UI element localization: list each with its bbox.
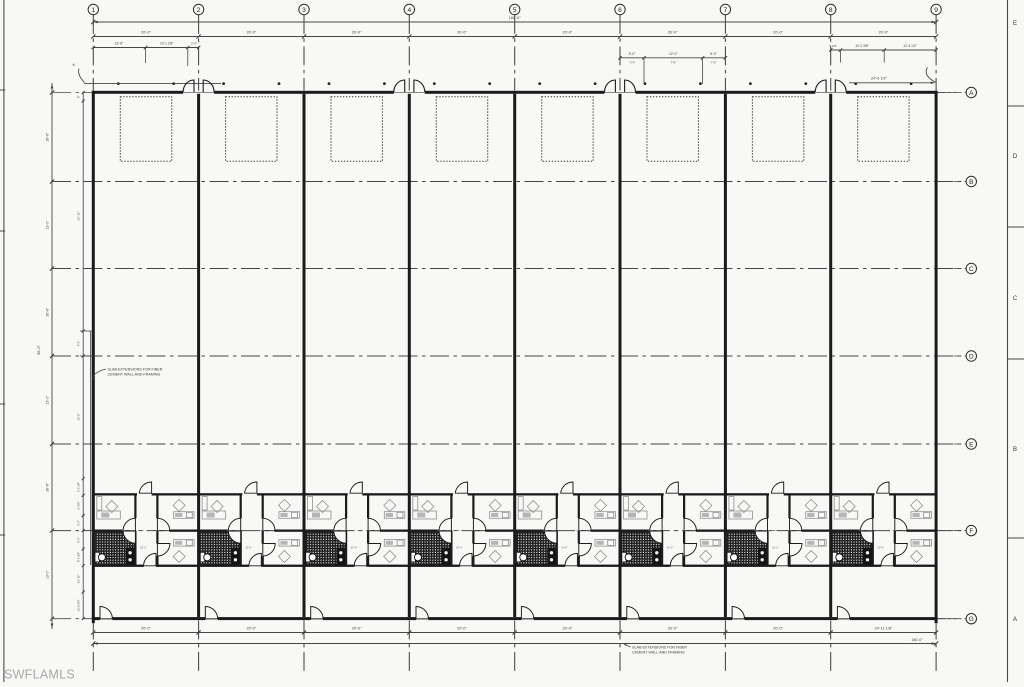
- svg-text:12'-0": 12'-0": [669, 52, 678, 56]
- svg-text:26'-6": 26'-6": [45, 307, 49, 316]
- svg-text:8": 8": [77, 96, 81, 99]
- svg-text:SLAB EXTENSIONS FOR FIBER: SLAB EXTENSIONS FOR FIBER: [108, 368, 163, 372]
- svg-text:20'-0": 20'-0": [667, 546, 674, 550]
- svg-text:5'-2 1/4": 5'-2 1/4": [77, 482, 81, 492]
- svg-text:20'-0": 20'-0": [772, 546, 779, 550]
- svg-text:20'-0": 20'-0": [668, 31, 678, 35]
- svg-text:20'-0": 20'-0": [246, 31, 256, 35]
- svg-text:SWFLAMLS: SWFLAMLS: [4, 668, 75, 682]
- svg-text:24'-11 1/8": 24'-11 1/8": [874, 627, 892, 631]
- svg-text:20'-0": 20'-0": [561, 546, 568, 550]
- svg-text:TYP: TYP: [711, 61, 717, 65]
- svg-text:E: E: [969, 441, 973, 448]
- svg-text:D: D: [969, 353, 974, 360]
- svg-text:10'-1 1/8": 10'-1 1/8": [160, 42, 173, 46]
- svg-text:20'-0": 20'-0": [457, 627, 467, 631]
- svg-text:8'-5 3/4": 8'-5 3/4": [77, 552, 81, 562]
- svg-text:20'-0": 20'-0": [668, 627, 678, 631]
- svg-text:2: 2: [197, 7, 201, 14]
- svg-text:10'-10": 10'-10": [77, 575, 81, 584]
- svg-text:7: 7: [724, 7, 728, 14]
- svg-text:A: A: [1013, 617, 1017, 623]
- svg-text:4: 4: [407, 7, 411, 14]
- svg-text:6: 6: [618, 7, 622, 14]
- svg-text:96'-0": 96'-0": [37, 345, 41, 355]
- svg-text:20'-0": 20'-0": [245, 546, 252, 550]
- svg-text:26'-6": 26'-6": [45, 482, 49, 491]
- svg-text:5: 5: [513, 7, 517, 14]
- svg-text:2'-4": 2'-4": [191, 42, 197, 46]
- svg-text:C: C: [1013, 296, 1018, 302]
- svg-text:C: C: [969, 266, 974, 273]
- svg-text:10'-2 3/8": 10'-2 3/8": [855, 44, 868, 48]
- svg-text:CEMENT WALL AND FRAMING: CEMENT WALL AND FRAMING: [632, 650, 685, 654]
- svg-text:9: 9: [934, 7, 938, 14]
- svg-text:F: F: [969, 528, 973, 535]
- svg-text:20'-0": 20'-0": [773, 627, 783, 631]
- svg-text:24'-6 1/2": 24'-6 1/2": [871, 77, 888, 81]
- svg-text:20'-0": 20'-0": [773, 31, 783, 35]
- svg-text:SLAB EXTENSIONS FOR FIBER: SLAB EXTENSIONS FOR FIBER: [632, 645, 687, 649]
- svg-text:CEMENT WALL AND FRAMING: CEMENT WALL AND FRAMING: [108, 373, 161, 377]
- svg-text:A: A: [969, 90, 974, 97]
- svg-text:5'-2": 5'-2": [77, 520, 81, 526]
- svg-text:20'-10": 20'-10": [77, 212, 81, 221]
- svg-text:12'-4 1/2": 12'-4 1/2": [903, 44, 916, 48]
- svg-text:20'-0": 20'-0": [246, 627, 256, 631]
- svg-text:20'-0": 20'-0": [140, 546, 147, 550]
- svg-text:1: 1: [91, 7, 95, 14]
- svg-text:20'-0": 20'-0": [141, 31, 151, 35]
- svg-text:B: B: [1013, 447, 1017, 453]
- svg-text:20'-0": 20'-0": [352, 627, 362, 631]
- svg-text:20'-0": 20'-0": [352, 31, 362, 35]
- svg-text:12'-8": 12'-8": [115, 42, 124, 46]
- svg-text:5 1/8": 5 1/8": [829, 44, 836, 48]
- svg-text:TYP: TYP: [629, 61, 635, 65]
- svg-text:E: E: [1013, 21, 1017, 27]
- svg-text:6'-3/4": 6'-3/4": [77, 502, 81, 510]
- svg-text:20'-0": 20'-0": [563, 31, 573, 35]
- svg-text:TYP: TYP: [671, 61, 677, 65]
- svg-text:20'-0": 20'-0": [351, 546, 358, 550]
- svg-text:5'-0": 5'-0": [629, 52, 637, 56]
- svg-text:4'-0": 4'-0": [77, 341, 81, 347]
- svg-text:20'-0": 20'-0": [563, 627, 573, 631]
- svg-text:B: B: [969, 179, 973, 186]
- svg-text:13'-0": 13'-0": [45, 220, 49, 229]
- svg-text:13'-0": 13'-0": [45, 570, 49, 579]
- svg-text:20'-0": 20'-0": [141, 627, 151, 631]
- svg-text:13'-0": 13'-0": [45, 395, 49, 404]
- svg-text:D: D: [1013, 154, 1018, 160]
- svg-text:8: 8: [829, 7, 833, 14]
- svg-text:6'-5": 6'-5": [77, 537, 81, 543]
- svg-text:12'-8 3/4": 12'-8 3/4": [77, 600, 81, 612]
- svg-text:20'-0": 20'-0": [877, 546, 884, 550]
- svg-text:12'-0": 12'-0": [77, 413, 81, 420]
- svg-text:20'-0": 20'-0": [457, 31, 467, 35]
- svg-text:20'-0": 20'-0": [456, 546, 463, 550]
- svg-text:5'-0": 5'-0": [710, 52, 718, 56]
- svg-text:160'-0": 160'-0": [509, 16, 521, 20]
- svg-text:160'-0": 160'-0": [911, 638, 923, 642]
- svg-text:26'-6": 26'-6": [45, 132, 49, 141]
- svg-text:3: 3: [302, 7, 306, 14]
- svg-text:G: G: [969, 616, 974, 623]
- svg-text:20'-0": 20'-0": [879, 31, 889, 35]
